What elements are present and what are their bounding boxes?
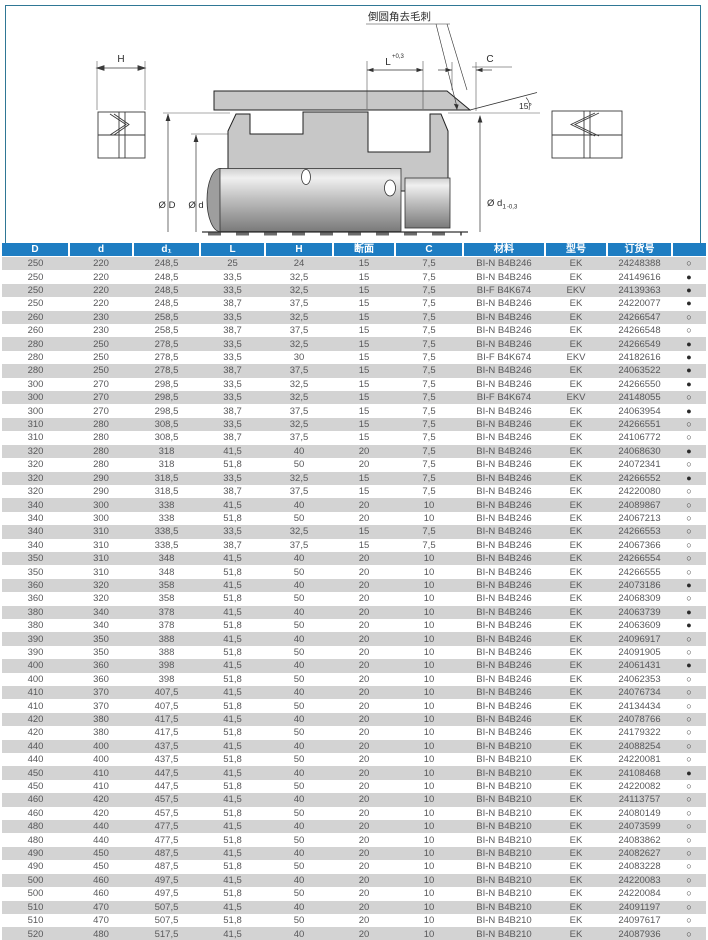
table-cell: 497,5 — [133, 874, 200, 887]
table-cell: 510 — [2, 914, 69, 927]
availability-marker-open: ○ — [672, 901, 706, 914]
table-cell: 7,5 — [395, 431, 463, 444]
table-row: 320290318,533,532,5157,5BI-N B4B246EK242… — [2, 472, 706, 485]
table-cell: 310 — [69, 525, 133, 538]
table-cell: EK — [545, 833, 607, 846]
table-cell: 260 — [2, 324, 69, 337]
table-cell: EK — [545, 673, 607, 686]
table-cell: BI-N B4B246 — [463, 659, 545, 672]
availability-marker-open: ○ — [672, 311, 706, 324]
table-row: 450410447,551,8502010BI-N B4B210EK242200… — [2, 780, 706, 793]
table-cell: 40 — [265, 659, 333, 672]
table-cell: 360 — [2, 592, 69, 605]
table-cell: 24266555 — [607, 565, 672, 578]
table-cell: 41,5 — [200, 820, 265, 833]
table-cell: 477,5 — [133, 833, 200, 846]
table-row: 36032035851,8502010BI-N B4B246EK24068309… — [2, 592, 706, 605]
table-cell: 24220082 — [607, 780, 672, 793]
table-row: 300270298,538,737,5157,5BI-N B4B246EK240… — [2, 404, 706, 417]
table-cell: 338,5 — [133, 525, 200, 538]
table-cell: 20 — [333, 927, 395, 940]
table-cell: EK — [545, 793, 607, 806]
table-cell: 388 — [133, 646, 200, 659]
table-cell: 310 — [2, 418, 69, 431]
table-cell: BI-N B4B246 — [463, 458, 545, 471]
table-row: 480440477,551,8502010BI-N B4B210EK240838… — [2, 833, 706, 846]
table-cell: EK — [545, 418, 607, 431]
table-cell: 490 — [2, 847, 69, 860]
table-cell: 278,5 — [133, 351, 200, 364]
availability-marker-open: ○ — [672, 458, 706, 471]
table-cell: 15 — [333, 337, 395, 350]
table-cell: 24266550 — [607, 378, 672, 391]
table-cell: BI-N B4B246 — [463, 592, 545, 605]
table-row: 35031034851,8502010BI-N B4B246EK24266555… — [2, 565, 706, 578]
table-cell: BI-F B4K674 — [463, 351, 545, 364]
table-cell: 308,5 — [133, 418, 200, 431]
table-cell: 51,8 — [200, 592, 265, 605]
availability-marker-filled: ● — [672, 297, 706, 310]
table-cell: 41,5 — [200, 445, 265, 458]
table-cell: 7,5 — [395, 364, 463, 377]
availability-marker-filled: ● — [672, 351, 706, 364]
table-row: 480440477,541,5402010BI-N B4B210EK240735… — [2, 820, 706, 833]
dimension-table: Ddd₁LH断面C材料型号订货号 250220248,52524157,5BI-… — [2, 243, 706, 940]
availability-marker-open: ○ — [672, 780, 706, 793]
table-cell: 24073186 — [607, 579, 672, 592]
table-row: 510470507,541,5402010BI-N B4B210EK240911… — [2, 901, 706, 914]
table-cell: EK — [545, 552, 607, 565]
table-cell: BI-N B4B246 — [463, 472, 545, 485]
table-cell: 10 — [395, 579, 463, 592]
table-cell: 360 — [2, 579, 69, 592]
table-cell: 40 — [265, 606, 333, 619]
table-cell: BI-N B4B246 — [463, 525, 545, 538]
table-cell: 24134434 — [607, 699, 672, 712]
table-cell: 300 — [69, 498, 133, 511]
table-cell: BI-N B4B246 — [463, 485, 545, 498]
table-cell: BI-N B4B210 — [463, 753, 545, 766]
table-cell: 507,5 — [133, 914, 200, 927]
table-cell: 20 — [333, 565, 395, 578]
table-cell: 50 — [265, 860, 333, 873]
table-cell: 410 — [69, 780, 133, 793]
table-cell: 37,5 — [265, 404, 333, 417]
table-cell: 41,5 — [200, 740, 265, 753]
table-cell: EK — [545, 297, 607, 310]
table-cell: 30 — [265, 351, 333, 364]
table-cell: 10 — [395, 726, 463, 739]
table-cell: 40 — [265, 713, 333, 726]
table-cell: 20 — [333, 887, 395, 900]
table-cell: 20 — [333, 726, 395, 739]
table-cell: 7,5 — [395, 418, 463, 431]
table-cell: 51,8 — [200, 887, 265, 900]
table-cell: EK — [545, 874, 607, 887]
table-cell: 24096917 — [607, 632, 672, 645]
table-cell: EK — [545, 619, 607, 632]
table-cell: 51,8 — [200, 860, 265, 873]
table-cell: BI-N B4B246 — [463, 726, 545, 739]
table-cell: 420 — [69, 793, 133, 806]
table-cell: 50 — [265, 807, 333, 820]
table-cell: 10 — [395, 512, 463, 525]
table-cell: 410 — [2, 686, 69, 699]
availability-marker-open: ○ — [672, 927, 706, 940]
table-cell: BI-N B4B210 — [463, 740, 545, 753]
table-cell: 20 — [333, 847, 395, 860]
table-cell: 38,7 — [200, 324, 265, 337]
table-cell: 24068309 — [607, 592, 672, 605]
table-cell: EK — [545, 887, 607, 900]
table-cell: 40 — [265, 874, 333, 887]
table-cell: 24220077 — [607, 297, 672, 310]
table-cell: 41,5 — [200, 686, 265, 699]
table-cell: 40 — [265, 901, 333, 914]
table-row: 300270298,533,532,5157,5BI-N B4B246EK242… — [2, 378, 706, 391]
table-row: 39035038851,8502010BI-N B4B246EK24091905… — [2, 646, 706, 659]
table-row: 34030033841,5402010BI-N B4B246EK24089867… — [2, 498, 706, 511]
table-row: 340310338,538,737,5157,5BI-N B4B246EK240… — [2, 539, 706, 552]
table-cell: 15 — [333, 418, 395, 431]
table-cell: BI-N B4B246 — [463, 270, 545, 283]
table-cell: 20 — [333, 673, 395, 686]
table-row: 510470507,551,8502010BI-N B4B210EK240976… — [2, 914, 706, 927]
dim-d-label: Ø d — [188, 200, 203, 211]
table-cell: 7,5 — [395, 284, 463, 297]
table-cell: 10 — [395, 766, 463, 779]
table-cell: 500 — [2, 887, 69, 900]
table-cell: EK — [545, 324, 607, 337]
table-cell: 20 — [333, 766, 395, 779]
table-cell: 300 — [2, 391, 69, 404]
table-cell: EK — [545, 270, 607, 283]
table-cell: 300 — [2, 378, 69, 391]
table-cell: BI-N B4B246 — [463, 445, 545, 458]
table-cell: 450 — [69, 847, 133, 860]
table-cell: 378 — [133, 606, 200, 619]
table-cell: EK — [545, 592, 607, 605]
table-cell: EK — [545, 753, 607, 766]
table-cell: 51,8 — [200, 726, 265, 739]
table-row: 410370407,551,8502010BI-N B4B246EK241344… — [2, 699, 706, 712]
availability-marker-filled: ● — [672, 579, 706, 592]
table-cell: 24149616 — [607, 270, 672, 283]
table-cell: 400 — [69, 753, 133, 766]
table-cell: 24266551 — [607, 418, 672, 431]
table-cell: EK — [545, 539, 607, 552]
table-cell: 15 — [333, 485, 395, 498]
column-header-0: D — [2, 243, 69, 257]
table-cell: 33,5 — [200, 418, 265, 431]
table-cell: 20 — [333, 552, 395, 565]
table-cell: 40 — [265, 927, 333, 940]
table-cell: 33,5 — [200, 351, 265, 364]
table-cell: EK — [545, 740, 607, 753]
table-cell: 50 — [265, 592, 333, 605]
table-cell: 308,5 — [133, 431, 200, 444]
table-cell: 24266548 — [607, 324, 672, 337]
column-header-1: d — [69, 243, 133, 257]
availability-marker-open: ○ — [672, 914, 706, 927]
table-cell: 480 — [2, 833, 69, 846]
table-cell: EK — [545, 606, 607, 619]
table-cell: 33,5 — [200, 391, 265, 404]
availability-marker-open: ○ — [672, 324, 706, 337]
availability-marker-filled: ● — [672, 404, 706, 417]
table-cell: EK — [545, 901, 607, 914]
table-cell: 15 — [333, 525, 395, 538]
table-cell: BI-N B4B246 — [463, 713, 545, 726]
table-cell: 320 — [69, 579, 133, 592]
table-cell: 480 — [2, 820, 69, 833]
table-cell: 7,5 — [395, 257, 463, 271]
table-cell: BI-N B4B210 — [463, 793, 545, 806]
table-cell: 437,5 — [133, 740, 200, 753]
table-cell: 318 — [133, 445, 200, 458]
table-cell: 340 — [2, 539, 69, 552]
table-cell: BI-N B4B246 — [463, 512, 545, 525]
table-cell: 7,5 — [395, 337, 463, 350]
table-cell: 250 — [2, 270, 69, 283]
table-cell: 440 — [69, 833, 133, 846]
table-cell: 220 — [69, 257, 133, 271]
table-cell: 477,5 — [133, 820, 200, 833]
availability-marker-open: ○ — [672, 686, 706, 699]
table-cell: 51,8 — [200, 512, 265, 525]
table-cell: 320 — [2, 458, 69, 471]
table-cell: 40 — [265, 445, 333, 458]
table-cell: 20 — [333, 646, 395, 659]
table-cell: 50 — [265, 699, 333, 712]
table-cell: 15 — [333, 324, 395, 337]
seal-installation-drawing: H 15° — [0, 0, 708, 243]
table-cell: 310 — [69, 565, 133, 578]
table-cell: 20 — [333, 753, 395, 766]
dim-D-arrow — [166, 114, 171, 122]
table-cell: 15 — [333, 378, 395, 391]
table-cell: EK — [545, 780, 607, 793]
table-cell: 24220083 — [607, 874, 672, 887]
table-cell: BI-N B4B210 — [463, 833, 545, 846]
table-cell: 33,5 — [200, 378, 265, 391]
table-cell: 20 — [333, 793, 395, 806]
table-row: 410370407,541,5402010BI-N B4B246EK240767… — [2, 686, 706, 699]
table-cell: 15 — [333, 270, 395, 283]
table-cell: 450 — [2, 766, 69, 779]
table-cell: 24063522 — [607, 364, 672, 377]
table-cell: 20 — [333, 699, 395, 712]
table-cell: 10 — [395, 619, 463, 632]
table-cell: 7,5 — [395, 458, 463, 471]
table-cell: 50 — [265, 512, 333, 525]
table-cell: 32,5 — [265, 472, 333, 485]
table-cell: 230 — [69, 311, 133, 324]
table-cell: 250 — [2, 297, 69, 310]
availability-marker-open: ○ — [672, 592, 706, 605]
table-cell: 32,5 — [265, 418, 333, 431]
table-cell: 41,5 — [200, 901, 265, 914]
column-header-5: 断面 — [333, 243, 395, 257]
table-cell: EK — [545, 565, 607, 578]
table-cell: 20 — [333, 445, 395, 458]
table-cell: BI-N B4B246 — [463, 552, 545, 565]
availability-marker-open: ○ — [672, 860, 706, 873]
table-cell: 360 — [69, 673, 133, 686]
table-cell: EK — [545, 646, 607, 659]
availability-marker-open: ○ — [672, 391, 706, 404]
table-cell: 24266553 — [607, 525, 672, 538]
table-cell: 10 — [395, 699, 463, 712]
table-row: 280250278,538,737,5157,5BI-N B4B246EK240… — [2, 364, 706, 377]
table-cell: 33,5 — [200, 284, 265, 297]
availability-marker-open: ○ — [672, 539, 706, 552]
table-cell: 260 — [2, 311, 69, 324]
table-cell: 24139363 — [607, 284, 672, 297]
table-row: 36032035841,5402010BI-N B4B246EK24073186… — [2, 579, 706, 592]
table-cell: 41,5 — [200, 552, 265, 565]
table-cell: 10 — [395, 860, 463, 873]
table-cell: 24266549 — [607, 337, 672, 350]
table-cell: 10 — [395, 820, 463, 833]
dim-L-label: L — [385, 57, 391, 68]
table-cell: 51,8 — [200, 807, 265, 820]
table-cell: EK — [545, 726, 607, 739]
availability-marker-filled: ● — [672, 445, 706, 458]
table-cell: 10 — [395, 914, 463, 927]
table-cell: 40 — [265, 552, 333, 565]
table-row: 32028031841,540207,5BI-N B4B246EK2406863… — [2, 445, 706, 458]
table-row: 460420457,551,8502010BI-N B4B210EK240801… — [2, 807, 706, 820]
table-cell: 7,5 — [395, 525, 463, 538]
table-cell: 24091197 — [607, 901, 672, 914]
table-cell: 24182616 — [607, 351, 672, 364]
availability-marker-filled: ● — [672, 606, 706, 619]
availability-marker-filled: ● — [672, 619, 706, 632]
table-cell: 24220084 — [607, 887, 672, 900]
table-cell: 460 — [69, 887, 133, 900]
table-cell: BI-N B4B210 — [463, 901, 545, 914]
table-cell: 348 — [133, 552, 200, 565]
table-row: 280250278,533,530157,5BI-F B4K674EKV2418… — [2, 351, 706, 364]
availability-marker-filled: ● — [672, 766, 706, 779]
table-cell: BI-N B4B246 — [463, 565, 545, 578]
table-cell: 24108468 — [607, 766, 672, 779]
table-cell: 230 — [69, 324, 133, 337]
availability-marker-open: ○ — [672, 632, 706, 645]
table-row: 320290318,538,737,5157,5BI-N B4B246EK242… — [2, 485, 706, 498]
table-cell: 32,5 — [265, 311, 333, 324]
table-cell: 24083862 — [607, 833, 672, 846]
table-cell: 50 — [265, 565, 333, 578]
table-cell: EK — [545, 311, 607, 324]
table-cell: 33,5 — [200, 525, 265, 538]
table-cell: 32,5 — [265, 525, 333, 538]
table-cell: 51,8 — [200, 914, 265, 927]
table-cell: 300 — [69, 512, 133, 525]
table-cell: 380 — [69, 726, 133, 739]
table-cell: 278,5 — [133, 364, 200, 377]
table-cell: 37,5 — [265, 431, 333, 444]
table-cell: 24063739 — [607, 606, 672, 619]
table-cell: BI-N B4B210 — [463, 914, 545, 927]
table-cell: 220 — [69, 284, 133, 297]
table-cell: 250 — [69, 351, 133, 364]
table-cell: 248,5 — [133, 257, 200, 271]
table-cell: 20 — [333, 740, 395, 753]
availability-marker-open: ○ — [672, 257, 706, 271]
table-cell: 20 — [333, 874, 395, 887]
table-cell: 220 — [69, 297, 133, 310]
table-cell: 24061431 — [607, 659, 672, 672]
table-cell: 37,5 — [265, 324, 333, 337]
table-row: 280250278,533,532,5157,5BI-N B4B246EK242… — [2, 337, 706, 350]
table-cell: 20 — [333, 860, 395, 873]
table-cell: 350 — [69, 632, 133, 645]
table-cell: EK — [545, 431, 607, 444]
table-cell: 20 — [333, 579, 395, 592]
table-cell: 24063954 — [607, 404, 672, 417]
column-header-7: 材料 — [463, 243, 545, 257]
table-cell: 15 — [333, 391, 395, 404]
table-cell: BI-N B4B246 — [463, 619, 545, 632]
table-cell: 50 — [265, 673, 333, 686]
table-cell: 380 — [69, 713, 133, 726]
column-header-6: C — [395, 243, 463, 257]
table-cell: EK — [545, 860, 607, 873]
table-cell: 398 — [133, 659, 200, 672]
availability-marker-open: ○ — [672, 847, 706, 860]
table-cell: 10 — [395, 927, 463, 940]
table-row: 500460497,551,8502010BI-N B4B210EK242200… — [2, 887, 706, 900]
table-cell: 24 — [265, 257, 333, 271]
table-cell: 15 — [333, 257, 395, 271]
table-cell: 7,5 — [395, 297, 463, 310]
availability-marker-open: ○ — [672, 699, 706, 712]
table-cell: 40 — [265, 498, 333, 511]
table-cell: 7,5 — [395, 404, 463, 417]
table-cell: 280 — [2, 337, 69, 350]
table-cell: 20 — [333, 592, 395, 605]
availability-marker-open: ○ — [672, 820, 706, 833]
table-cell: 380 — [2, 619, 69, 632]
table-cell: 417,5 — [133, 713, 200, 726]
table-cell: 250 — [69, 337, 133, 350]
table-cell: 10 — [395, 874, 463, 887]
table-cell: 380 — [2, 606, 69, 619]
table-cell: 20 — [333, 807, 395, 820]
table-cell: 15 — [333, 311, 395, 324]
table-cell: 378 — [133, 619, 200, 632]
table-cell: 15 — [333, 364, 395, 377]
table-cell: 24067213 — [607, 512, 672, 525]
table-cell: 32,5 — [265, 270, 333, 283]
table-cell: 10 — [395, 901, 463, 914]
availability-marker-open: ○ — [672, 753, 706, 766]
table-cell: EK — [545, 632, 607, 645]
table-cell: 350 — [2, 565, 69, 578]
table-cell: EK — [545, 404, 607, 417]
table-cell: 400 — [69, 740, 133, 753]
table-cell: 24073599 — [607, 820, 672, 833]
availability-marker-open: ○ — [672, 498, 706, 511]
column-header-8: 型号 — [545, 243, 607, 257]
availability-marker-open: ○ — [672, 833, 706, 846]
table-cell: 24068630 — [607, 445, 672, 458]
table-cell: 497,5 — [133, 887, 200, 900]
table-cell: 298,5 — [133, 391, 200, 404]
table-row: 520480517,541,5402010BI-N B4B210EK240879… — [2, 927, 706, 940]
